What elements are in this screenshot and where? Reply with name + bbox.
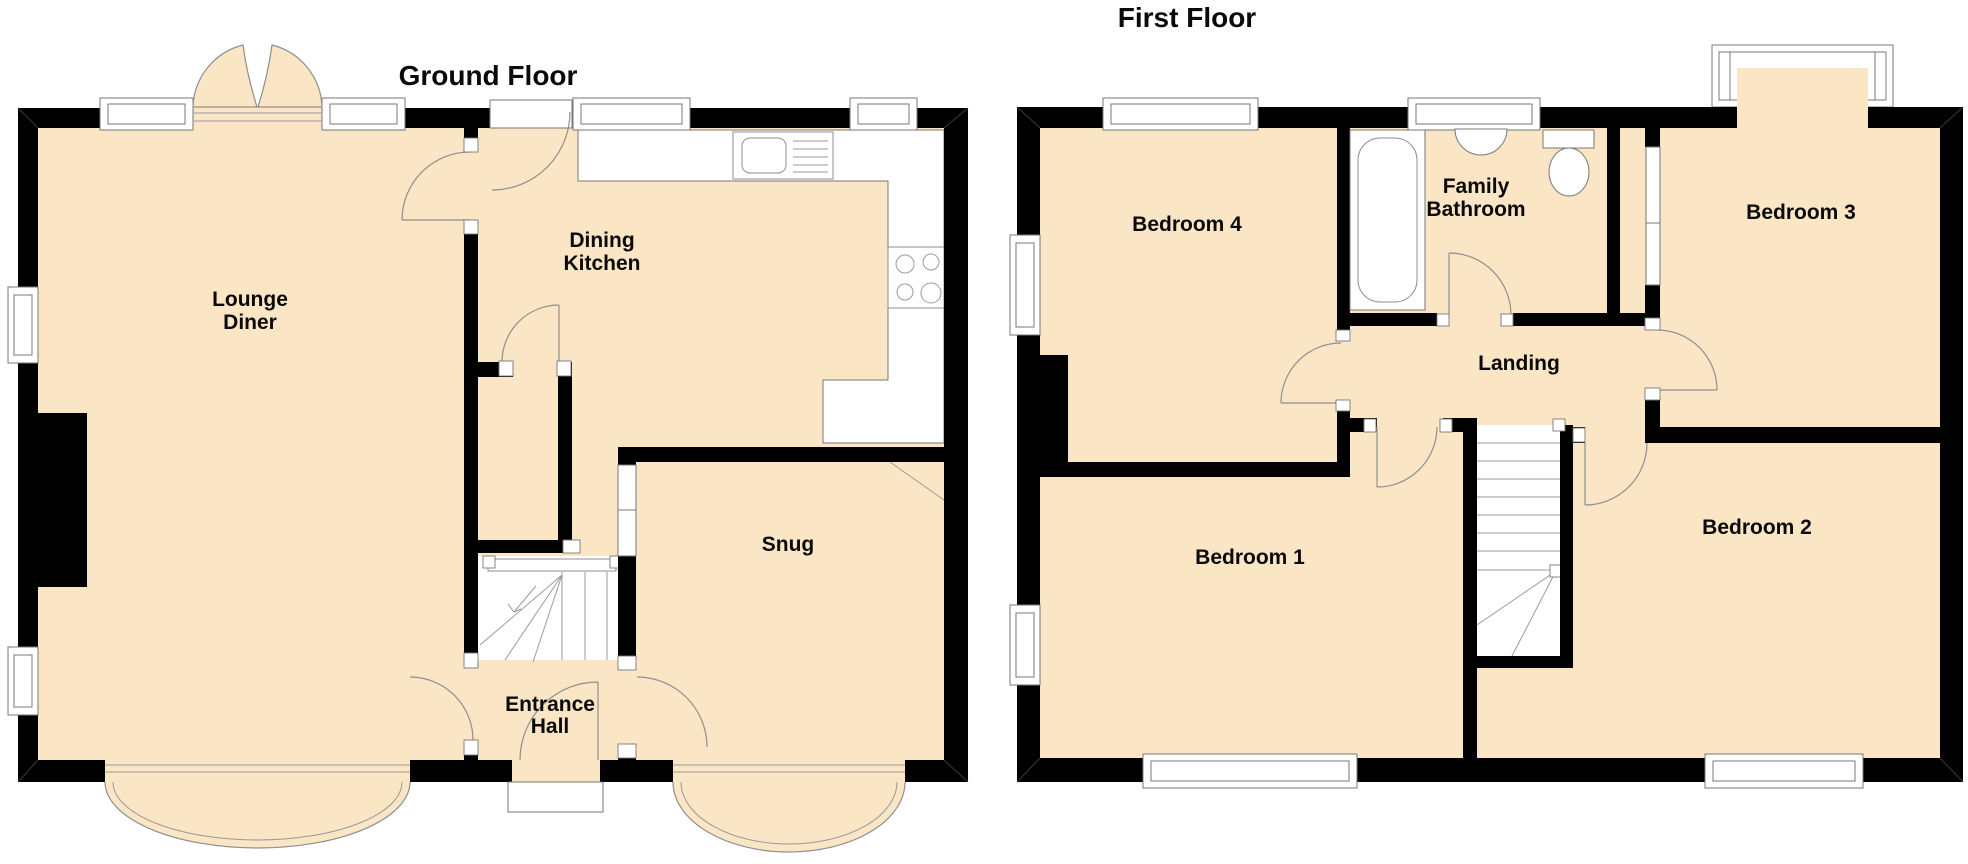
room-label-entrance-hall: Entrance — [505, 693, 595, 716]
room-label-family-bathroom-2: Bathroom — [1426, 198, 1525, 221]
room-label-dining-kitchen-2: Kitchen — [563, 252, 640, 275]
window — [100, 98, 193, 130]
stair-window — [618, 465, 636, 556]
window — [850, 98, 917, 130]
window — [1010, 605, 1040, 685]
ground-floor-title: Ground Floor — [399, 60, 578, 91]
window — [8, 287, 38, 363]
window — [1143, 754, 1357, 788]
bay-window-floor-left — [105, 782, 410, 848]
ground-staircase — [478, 556, 622, 662]
stair-newel — [1553, 419, 1565, 431]
window — [1408, 98, 1540, 130]
room-label-entrance-hall-2: Hall — [531, 715, 570, 738]
projecting-bay-window — [1712, 45, 1893, 128]
room-label-landing: Landing — [1478, 352, 1560, 375]
hob-icon — [888, 247, 944, 308]
room-label-lounge-diner: Lounge — [212, 288, 288, 311]
window — [1010, 235, 1040, 335]
room-label-family-bathroom: Family — [1443, 175, 1510, 198]
room-label-bedroom4: Bedroom 4 — [1132, 213, 1242, 236]
window — [1103, 98, 1258, 130]
window — [322, 98, 405, 130]
floorplan-page: Ground Floor Lounge Diner Dining Kitchen… — [0, 0, 1968, 864]
door-step — [508, 782, 603, 812]
chimney-breast — [1040, 355, 1068, 474]
first-staircase — [1477, 425, 1562, 656]
ground-floor-plan: Ground Floor Lounge Diner Dining Kitchen… — [8, 45, 968, 852]
bath-icon — [1350, 130, 1425, 310]
window — [1705, 754, 1863, 788]
first-floor-title: First Floor — [1118, 2, 1257, 33]
room-label-lounge-diner-2: Diner — [223, 311, 277, 334]
room-label-dining-kitchen: Dining — [569, 229, 634, 252]
room-label-bedroom2: Bedroom 2 — [1702, 516, 1812, 539]
window — [573, 98, 690, 130]
floorplan-drawing: Ground Floor Lounge Diner Dining Kitchen… — [0, 0, 1968, 864]
window — [8, 647, 38, 715]
built-in-cupboard — [1646, 147, 1660, 285]
sink-drainer-icon — [733, 132, 833, 179]
room-label-snug: Snug — [762, 533, 815, 556]
first-floor-plan: First Floor Bedroom 4 Family Bathroom Be… — [1010, 2, 1963, 788]
ground-floor-area — [38, 128, 944, 760]
room-label-bedroom3: Bedroom 3 — [1746, 201, 1856, 224]
room-label-bedroom1: Bedroom 1 — [1195, 546, 1305, 569]
bay-window-floor-right — [673, 782, 905, 852]
chimney-breast — [38, 413, 87, 587]
